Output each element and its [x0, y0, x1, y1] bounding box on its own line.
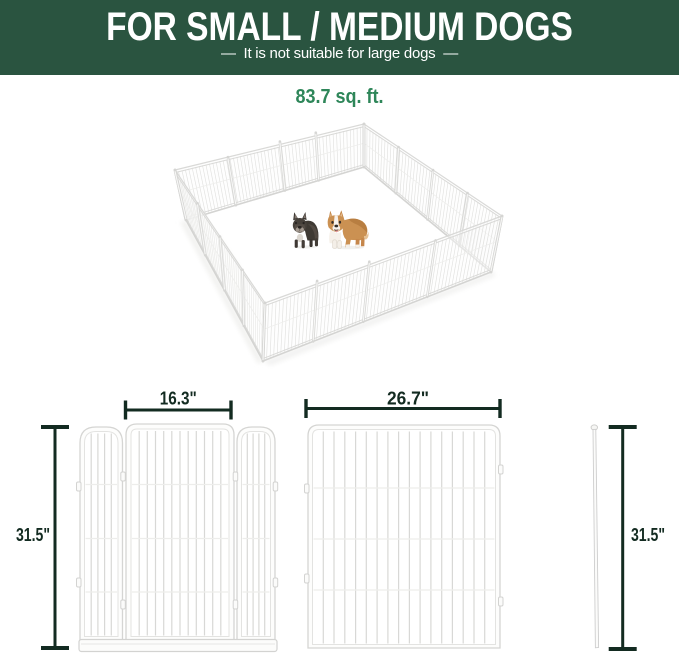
svg-text:31.5": 31.5"	[631, 524, 665, 545]
svg-text:26.7": 26.7"	[387, 388, 429, 409]
svg-text:31.5": 31.5"	[16, 524, 50, 545]
svg-text:16.3": 16.3"	[160, 388, 197, 409]
